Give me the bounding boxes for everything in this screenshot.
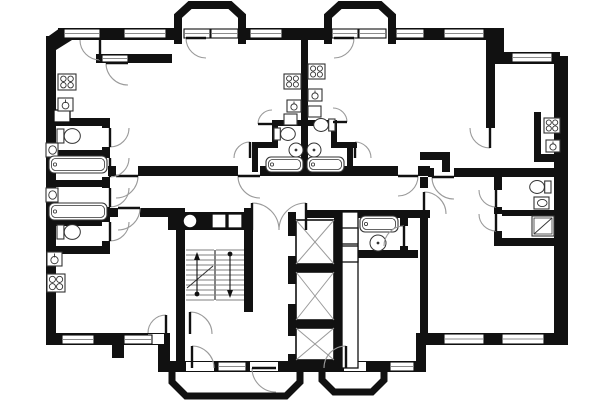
wall-segment bbox=[334, 212, 342, 368]
wall-segment bbox=[486, 28, 495, 128]
sink-icon bbox=[287, 100, 301, 112]
bay-window-wall bbox=[172, 368, 300, 396]
window bbox=[512, 53, 552, 62]
bathtub-icon bbox=[307, 157, 344, 172]
wall-segment bbox=[347, 142, 353, 172]
door bbox=[234, 142, 250, 158]
bays-layer bbox=[172, 5, 392, 396]
wall-opening bbox=[288, 336, 296, 354]
sink-icon bbox=[58, 98, 73, 111]
wall-segment bbox=[502, 210, 556, 216]
window bbox=[62, 335, 94, 344]
door-swing-arc bbox=[106, 63, 128, 85]
window bbox=[250, 29, 282, 38]
sink-icon bbox=[47, 252, 62, 266]
floor-plan-svg bbox=[0, 0, 600, 400]
window bbox=[218, 362, 246, 371]
window bbox=[332, 29, 358, 38]
toilet-bowl bbox=[64, 129, 80, 144]
wall-segment bbox=[108, 208, 118, 217]
wall-opening bbox=[288, 284, 296, 304]
round-fixture-icon bbox=[289, 143, 303, 157]
wall-segment bbox=[356, 250, 418, 258]
stove-body bbox=[544, 118, 560, 133]
wall-segment bbox=[554, 56, 568, 345]
elevators-layer bbox=[296, 220, 334, 360]
wall-segment bbox=[400, 246, 408, 258]
bathtub-icon bbox=[266, 157, 303, 172]
window bbox=[444, 334, 484, 344]
duct-box bbox=[54, 110, 70, 122]
window bbox=[444, 29, 484, 38]
door bbox=[355, 142, 371, 158]
wall-segment bbox=[420, 214, 428, 333]
wall-segment bbox=[288, 320, 342, 328]
toilet-tank bbox=[545, 181, 551, 193]
door bbox=[470, 128, 490, 148]
door-swing-arc bbox=[252, 203, 279, 230]
wall-segment bbox=[494, 177, 502, 190]
door-swing-arc bbox=[190, 312, 212, 334]
cabinet-box bbox=[308, 106, 321, 117]
wall-segment bbox=[494, 207, 502, 214]
stair-up-arrowhead bbox=[194, 252, 200, 260]
door-swing-arc bbox=[110, 128, 129, 147]
wall-opening bbox=[288, 236, 296, 256]
elevator-shaft bbox=[296, 272, 334, 320]
bathtub-icon bbox=[49, 203, 107, 220]
elevator-shaft bbox=[296, 220, 334, 264]
door-swing-arc bbox=[258, 110, 272, 124]
sink-icon bbox=[308, 89, 322, 101]
wall-segment bbox=[46, 180, 110, 187]
washbasin-icon bbox=[46, 143, 58, 157]
duct-box bbox=[342, 246, 358, 262]
window bbox=[359, 29, 386, 38]
stove-icon bbox=[284, 74, 301, 89]
wall-segment bbox=[420, 177, 428, 188]
duct-box bbox=[212, 214, 226, 228]
toilet-bowl bbox=[64, 225, 80, 240]
wall-segment bbox=[454, 168, 568, 177]
toilet-icon bbox=[314, 119, 335, 132]
wall-opening bbox=[186, 362, 214, 371]
window bbox=[102, 55, 128, 62]
washbasin-icon bbox=[46, 188, 58, 202]
door bbox=[479, 214, 496, 231]
bathtub-icon bbox=[49, 156, 107, 173]
floor-plan bbox=[0, 0, 600, 400]
wall-opening bbox=[250, 362, 278, 371]
stove-icon bbox=[47, 274, 65, 292]
round-fixture-center bbox=[313, 149, 316, 152]
round-fixture-icon bbox=[370, 235, 386, 251]
shower-icon bbox=[532, 216, 554, 236]
sink-icon bbox=[546, 140, 560, 152]
door-swing-arc bbox=[110, 222, 129, 241]
toilet-tank bbox=[57, 129, 64, 143]
door-swing-arc bbox=[148, 315, 166, 333]
wall-segment bbox=[288, 264, 342, 272]
wall-segment bbox=[176, 208, 185, 372]
toilet-icon bbox=[57, 129, 80, 144]
door bbox=[148, 315, 166, 333]
door bbox=[252, 203, 279, 230]
stove-icon bbox=[308, 64, 325, 79]
garbage-chute-icon bbox=[183, 214, 197, 228]
wall-segment bbox=[534, 154, 558, 162]
door-swing-arc bbox=[398, 176, 418, 196]
cabinet-box bbox=[284, 114, 297, 125]
round-fixture-center bbox=[377, 242, 380, 245]
window bbox=[390, 362, 414, 371]
wall-segment bbox=[428, 168, 434, 177]
door-swing-arc bbox=[116, 176, 138, 198]
door-swing-arc bbox=[238, 176, 260, 198]
wall-segment bbox=[112, 345, 124, 358]
window bbox=[124, 29, 166, 38]
round-fixture-center bbox=[295, 149, 298, 152]
door bbox=[116, 176, 138, 198]
duct-box bbox=[228, 214, 242, 228]
wall-segment bbox=[102, 118, 110, 128]
stove-body bbox=[284, 74, 301, 89]
stairs-layer bbox=[186, 250, 244, 300]
toilet-tank bbox=[274, 128, 280, 140]
window bbox=[502, 334, 544, 344]
wall-segment bbox=[416, 333, 568, 345]
window bbox=[124, 335, 152, 344]
door-swing-arc bbox=[470, 128, 490, 148]
door-swing-arc bbox=[479, 190, 496, 207]
stove-body bbox=[58, 74, 76, 90]
door bbox=[106, 63, 128, 85]
wall-segment bbox=[494, 238, 556, 246]
toilet-bowl bbox=[281, 128, 296, 141]
wall-segment bbox=[400, 218, 408, 226]
door bbox=[110, 128, 129, 147]
stair-down-arrowhead bbox=[227, 290, 233, 298]
stove-body bbox=[308, 64, 325, 79]
wall-segment bbox=[138, 166, 238, 176]
wall-segment bbox=[442, 152, 450, 172]
door-swing-arc bbox=[234, 142, 250, 158]
washbasin-icon bbox=[534, 197, 549, 209]
door bbox=[479, 190, 496, 207]
duct-box bbox=[342, 228, 358, 244]
stove-body bbox=[47, 274, 65, 292]
door-swing-arc bbox=[479, 214, 496, 231]
window bbox=[64, 29, 100, 38]
toilet-icon bbox=[530, 181, 551, 194]
door bbox=[190, 312, 212, 334]
window bbox=[396, 29, 424, 38]
toilet-bowl bbox=[314, 119, 329, 132]
toilet-bowl bbox=[530, 181, 545, 194]
door bbox=[110, 222, 129, 241]
toilet-tank bbox=[57, 225, 64, 239]
stove-icon bbox=[58, 74, 76, 90]
window bbox=[211, 29, 238, 38]
wall-segment bbox=[288, 360, 342, 368]
door bbox=[258, 110, 272, 124]
door bbox=[398, 176, 418, 196]
door-swing-arc bbox=[355, 142, 371, 158]
stove-icon bbox=[544, 118, 560, 133]
door bbox=[238, 176, 260, 198]
toilet-icon bbox=[57, 225, 80, 240]
window bbox=[184, 29, 210, 38]
round-fixture-icon bbox=[307, 143, 321, 157]
toilet-icon bbox=[274, 128, 295, 141]
